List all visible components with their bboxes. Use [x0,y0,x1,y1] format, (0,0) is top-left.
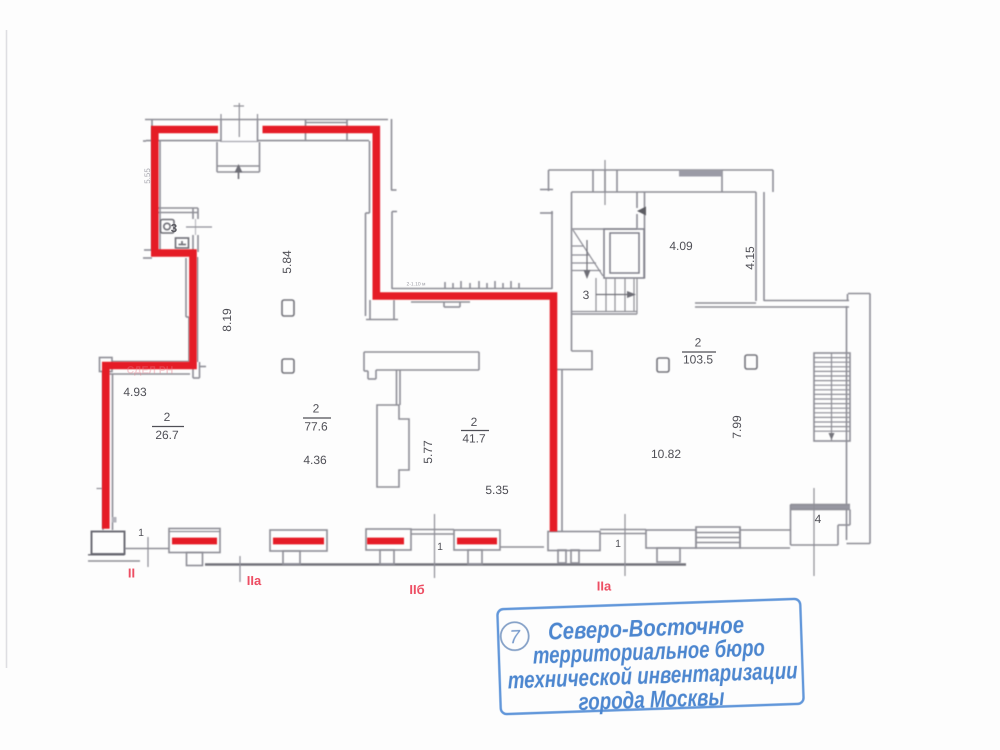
svg-text:2: 2 [471,415,478,429]
svg-text:5.35: 5.35 [485,483,509,497]
svg-text:7: 7 [509,627,522,648]
svg-text:города Москвы: города Москвы [578,684,725,716]
svg-text:4.15: 4.15 [743,246,757,270]
svg-text:II: II [128,566,135,581]
svg-text:2-1.10 м: 2-1.10 м [406,282,426,288]
svg-text:77.6: 77.6 [304,420,328,434]
svg-text:41.7: 41.7 [462,432,486,446]
svg-text:СДЕЛ РН: СДЕЛ РН [127,365,174,377]
svg-text:103.5: 103.5 [683,353,713,367]
svg-text:3: 3 [171,223,177,235]
svg-text:5.77: 5.77 [421,440,435,464]
svg-text:7.99: 7.99 [730,415,744,439]
svg-text:1: 1 [138,527,144,539]
svg-text:8.19: 8.19 [220,308,234,332]
svg-text:2: 2 [313,402,320,416]
svg-text:5.84: 5.84 [280,250,294,274]
svg-text:26.7: 26.7 [155,428,179,442]
svg-text:1: 1 [437,541,443,553]
svg-text:IIб: IIб [409,582,424,597]
svg-text:2: 2 [695,336,702,350]
svg-text:4.36: 4.36 [303,453,327,467]
svg-text:IIa: IIa [597,579,612,594]
svg-text:5.55: 5.55 [143,168,152,184]
svg-text:4.93: 4.93 [123,385,147,399]
svg-text:10.82: 10.82 [651,447,681,461]
svg-text:4: 4 [815,512,822,526]
svg-text:IIa: IIa [247,573,262,588]
svg-text:4.09: 4.09 [669,239,693,253]
svg-text:3: 3 [583,288,590,302]
svg-text:2: 2 [164,410,171,424]
svg-text:1: 1 [615,538,621,550]
